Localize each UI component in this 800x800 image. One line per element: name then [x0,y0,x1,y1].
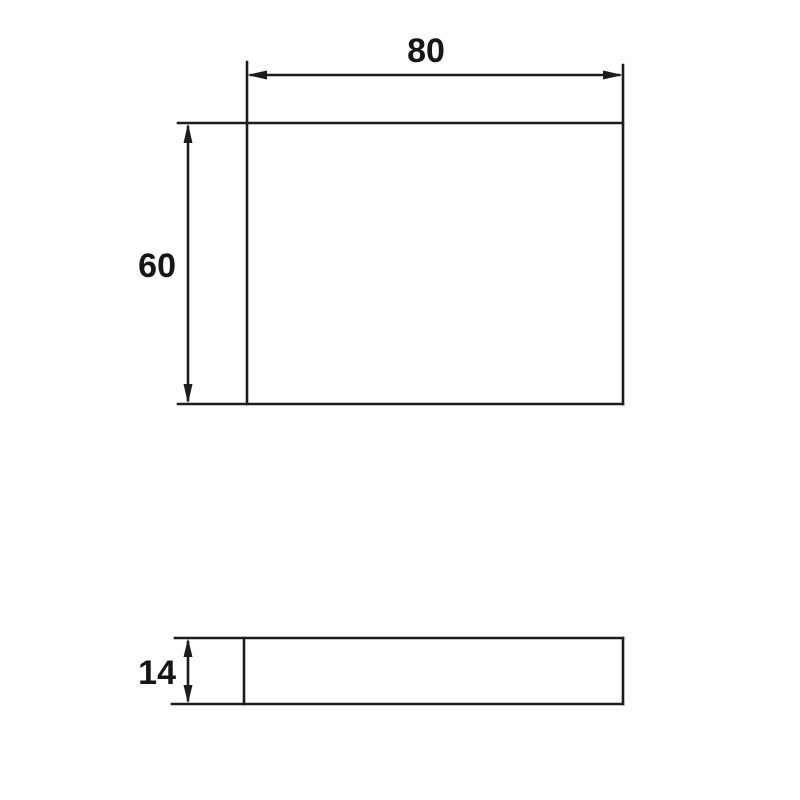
plan-height-dimension: 60 [138,124,192,404]
arrow-down-icon [184,685,193,704]
arrow-left-icon [247,71,267,80]
plan-width-dimension: 80 [247,32,623,80]
arrow-up-icon [184,124,193,144]
side-thickness-dimension: 14 [138,639,192,704]
arrow-up-icon [184,639,193,658]
arrow-right-icon [603,71,623,80]
plan-width-dimension-label: 80 [407,32,445,70]
plan-view: 80 60 [138,32,623,404]
side-view: 14 [138,638,623,704]
side-thickness-dimension-label: 14 [138,654,176,692]
arrow-down-icon [184,384,193,404]
technical-drawing-canvas: 80 60 14 [0,0,800,800]
technical-drawing: 80 60 14 [0,0,800,800]
plan-height-dimension-label: 60 [138,247,176,285]
